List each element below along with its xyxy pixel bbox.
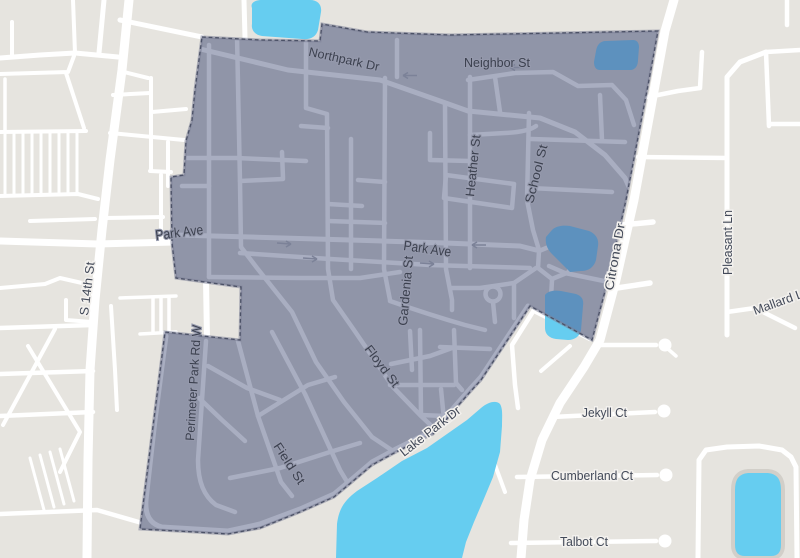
svg-text:Pleasant Ln: Pleasant Ln <box>721 210 735 275</box>
svg-text:Jekyll Ct: Jekyll Ct <box>582 406 627 420</box>
svg-text:Talbot Ct: Talbot Ct <box>560 535 608 549</box>
svg-text:Cumberland Ct: Cumberland Ct <box>551 469 634 483</box>
svg-text:Neighbor St: Neighbor St <box>464 56 531 70</box>
